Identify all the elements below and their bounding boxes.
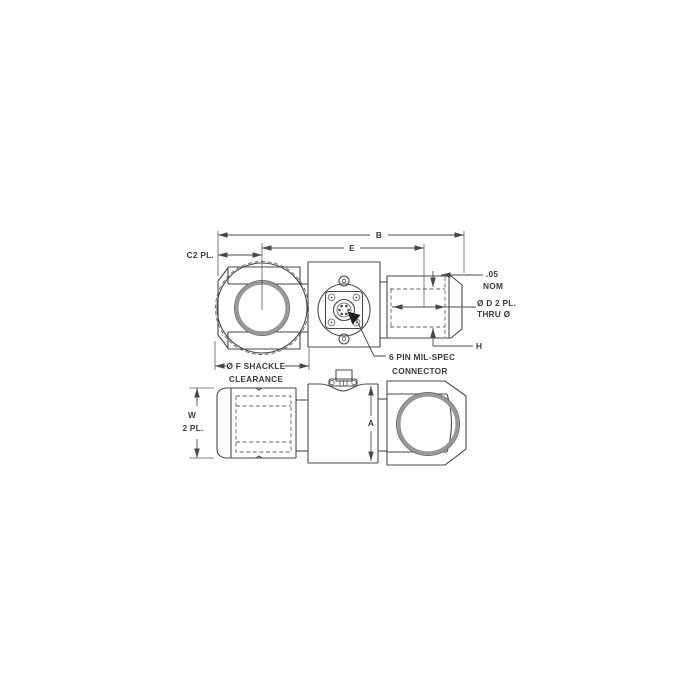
eye-end-side xyxy=(387,381,466,465)
internal-thread-dashed xyxy=(236,396,291,452)
chamfer-top xyxy=(218,268,228,281)
connector-pin xyxy=(340,305,343,308)
dim-c2: C2 PL. xyxy=(187,250,262,260)
dim-b: B xyxy=(218,230,464,240)
connector-flange-lug xyxy=(330,380,334,384)
dim-b-label: B xyxy=(376,230,382,240)
connector-pin xyxy=(340,313,343,316)
threaded-coupling xyxy=(217,388,308,458)
dim-w-places-label: 2 PL. xyxy=(182,423,203,433)
connector-label-2: CONNECTOR xyxy=(392,366,448,376)
top-view xyxy=(216,243,463,355)
nom-label: NOM xyxy=(483,281,503,291)
dim-d-thru: Ø D 2 PL. THRU Ø xyxy=(392,298,516,319)
center-body-side xyxy=(308,370,387,463)
coupling-cap xyxy=(217,388,231,458)
dim-c2-label: C2 PL. xyxy=(187,250,214,260)
thru-d-label: THRU Ø xyxy=(477,309,511,319)
connector-pin xyxy=(345,313,348,316)
bore-edge xyxy=(397,393,460,456)
dim-e-label: E xyxy=(349,243,355,253)
dim-a: A xyxy=(368,386,374,461)
connector-pin xyxy=(347,309,350,312)
connector-label-1: 6 PIN MIL-SPEC xyxy=(389,352,455,362)
center-body xyxy=(308,262,387,347)
mil-spec-connector xyxy=(318,276,370,344)
connector-pin xyxy=(345,305,348,308)
dia-d-label: Ø D 2 PL. xyxy=(477,298,516,308)
dim-a-label: A xyxy=(368,418,374,428)
dim-w: W 2 PL. xyxy=(182,388,203,458)
connector-pointer-arrow-icon xyxy=(348,312,361,325)
dim-05-nom: .05 NOM xyxy=(433,269,503,291)
side-view xyxy=(217,370,466,465)
connector-ear-bottom-center xyxy=(342,337,346,341)
body-top-notched xyxy=(308,384,378,391)
drawing-page: B E C2 PL. Ø F SHACKLE CLEARANCE .05 NOM xyxy=(0,0,700,700)
engineering-drawing: B E C2 PL. Ø F SHACKLE CLEARANCE .05 NOM xyxy=(0,0,700,700)
dim-w-label: W xyxy=(188,410,196,420)
bore-ring xyxy=(399,395,457,453)
shackle-eye-end xyxy=(216,243,309,355)
shackle-label-1: Ø F SHACKLE xyxy=(227,361,286,371)
dim-e: E xyxy=(262,243,424,253)
connector-screw-dot xyxy=(356,297,358,299)
nom-value-label: .05 xyxy=(486,269,498,279)
connector-screw-dot xyxy=(331,297,333,299)
dim-h-label: H xyxy=(476,341,482,351)
connector-flange-lug xyxy=(352,380,356,384)
connector-pin xyxy=(338,309,341,312)
chamfer-bottom xyxy=(218,335,228,348)
shackle-label-2: CLEARANCE xyxy=(229,374,284,384)
dim-shackle-clearance: Ø F SHACKLE CLEARANCE xyxy=(215,361,309,384)
connector-ear-top-center xyxy=(342,279,346,283)
dim-h: H xyxy=(433,328,482,351)
connector-screw-dot xyxy=(331,322,333,324)
connector-side-flange xyxy=(329,379,357,386)
